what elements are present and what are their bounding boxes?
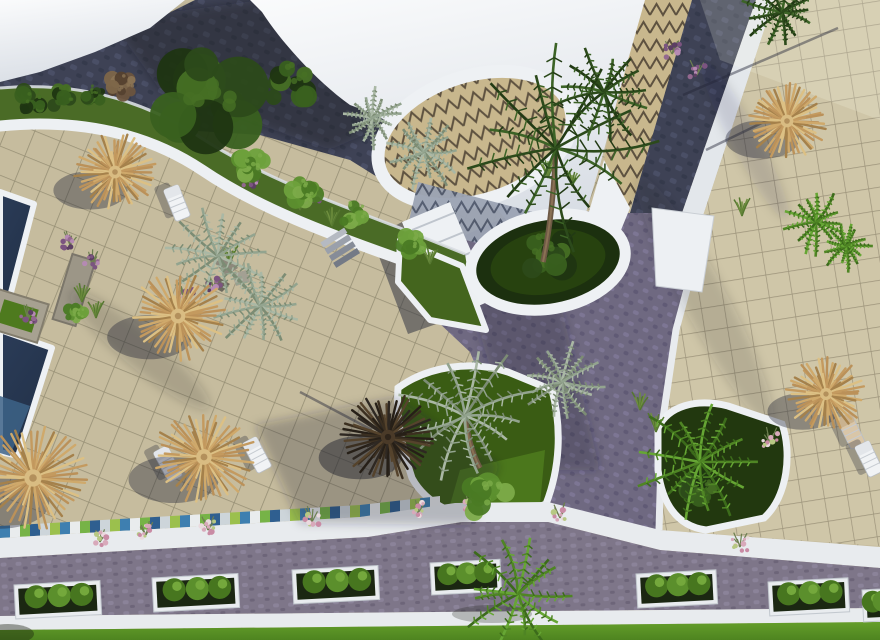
planter-box: [292, 565, 380, 603]
aerial-resort-render: [0, 0, 880, 640]
planter-box: [14, 580, 102, 618]
planter-box: [861, 588, 880, 622]
planter-box: [768, 578, 850, 616]
render-viewport: [0, 0, 880, 640]
bush: [150, 47, 269, 154]
planter-box: [636, 570, 718, 608]
planter-box: [152, 573, 240, 611]
